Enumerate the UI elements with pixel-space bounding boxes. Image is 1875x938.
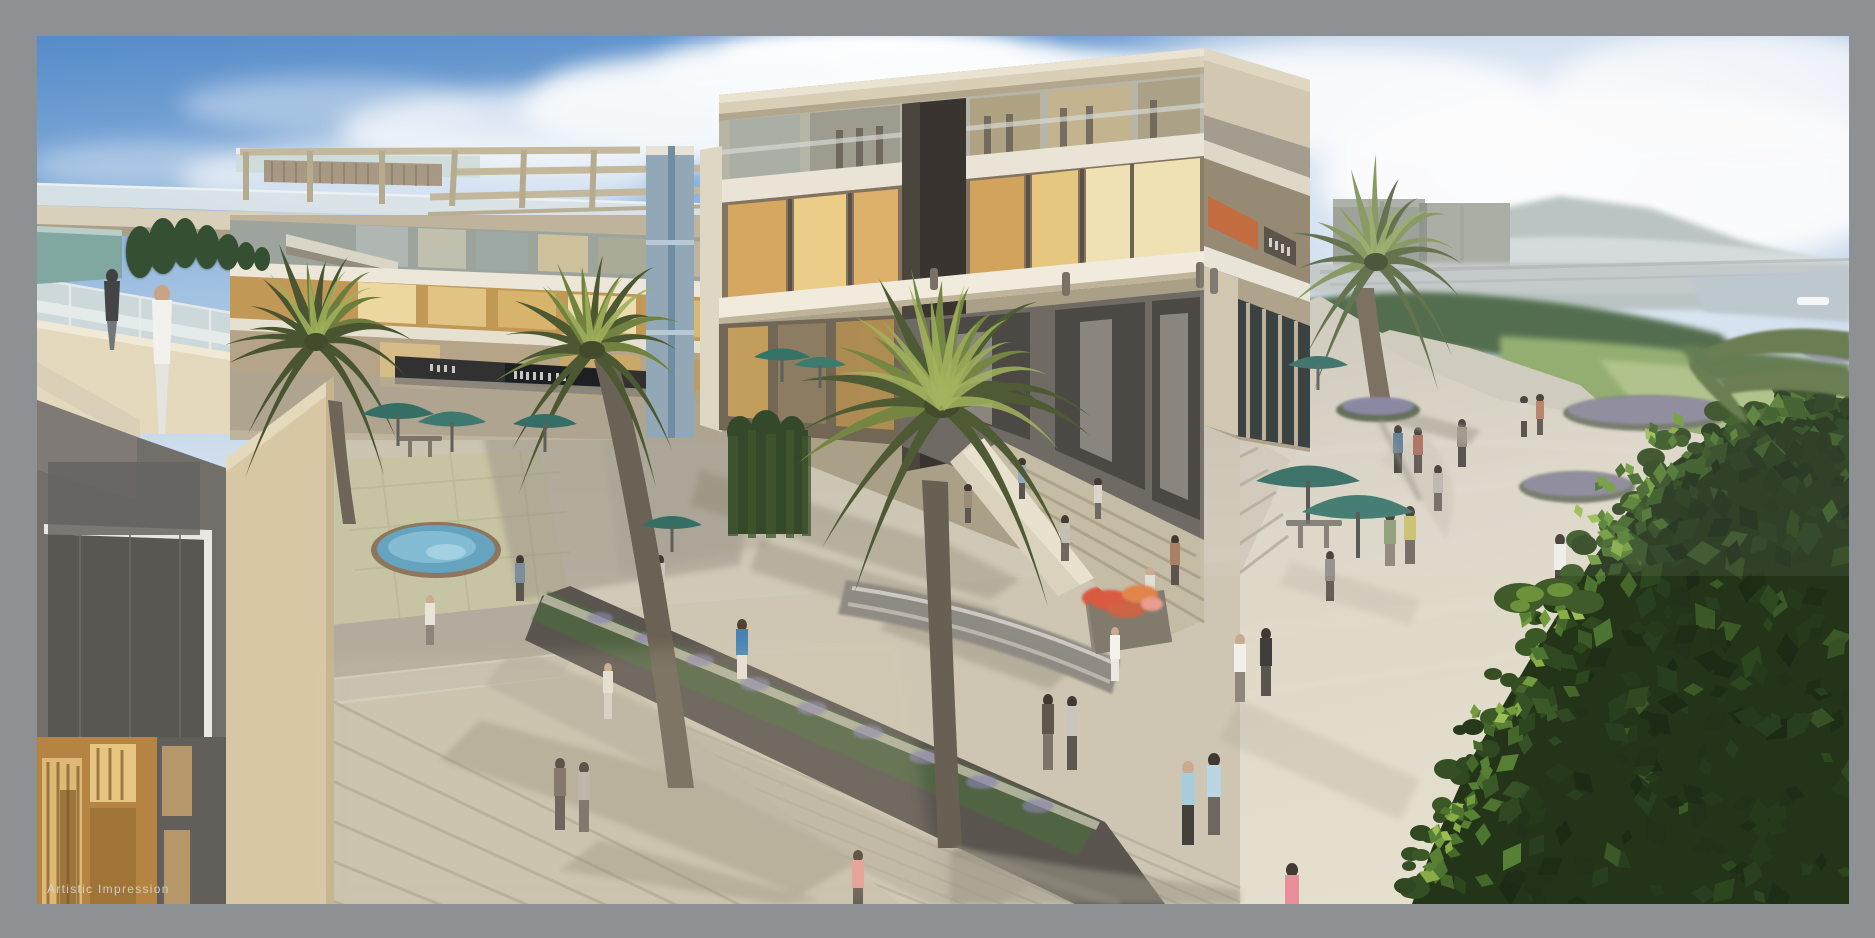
svg-text:Artistic Impression: Artistic Impression (47, 882, 170, 896)
